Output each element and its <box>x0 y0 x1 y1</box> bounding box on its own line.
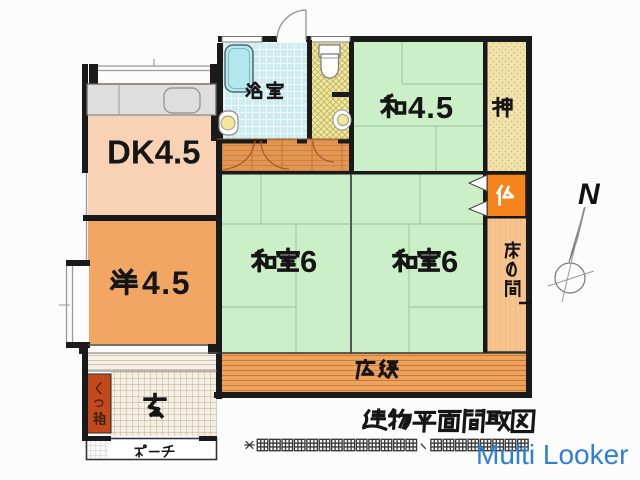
svg-text:6: 6 <box>300 244 317 279</box>
svg-text:DK4.5: DK4.5 <box>107 134 201 171</box>
svg-text:6: 6 <box>441 244 458 279</box>
svg-text:4.5: 4.5 <box>142 265 191 301</box>
svg-text:N: N <box>578 178 601 211</box>
svg-text:Multi Looker: Multi Looker <box>476 439 629 470</box>
svg-text:4.5: 4.5 <box>408 90 454 125</box>
